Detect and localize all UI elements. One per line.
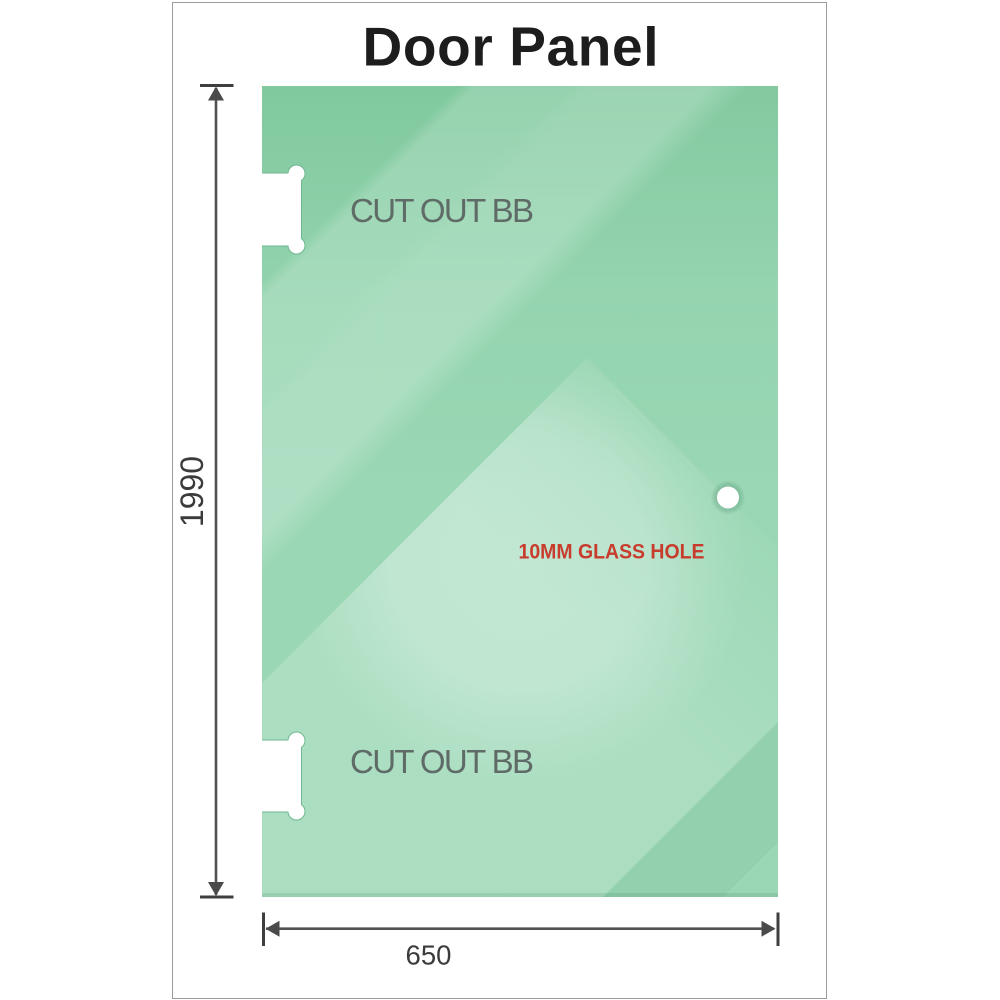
svg-text:10MM GLASS HOLE: 10MM GLASS HOLE <box>519 540 705 564</box>
svg-text:650: 650 <box>406 940 452 971</box>
svg-text:CUT OUT BB: CUT OUT BB <box>350 743 534 780</box>
svg-text:Door Panel: Door Panel <box>363 16 659 78</box>
svg-text:CUT OUT BB: CUT OUT BB <box>350 192 534 229</box>
svg-text:1990: 1990 <box>174 456 210 527</box>
